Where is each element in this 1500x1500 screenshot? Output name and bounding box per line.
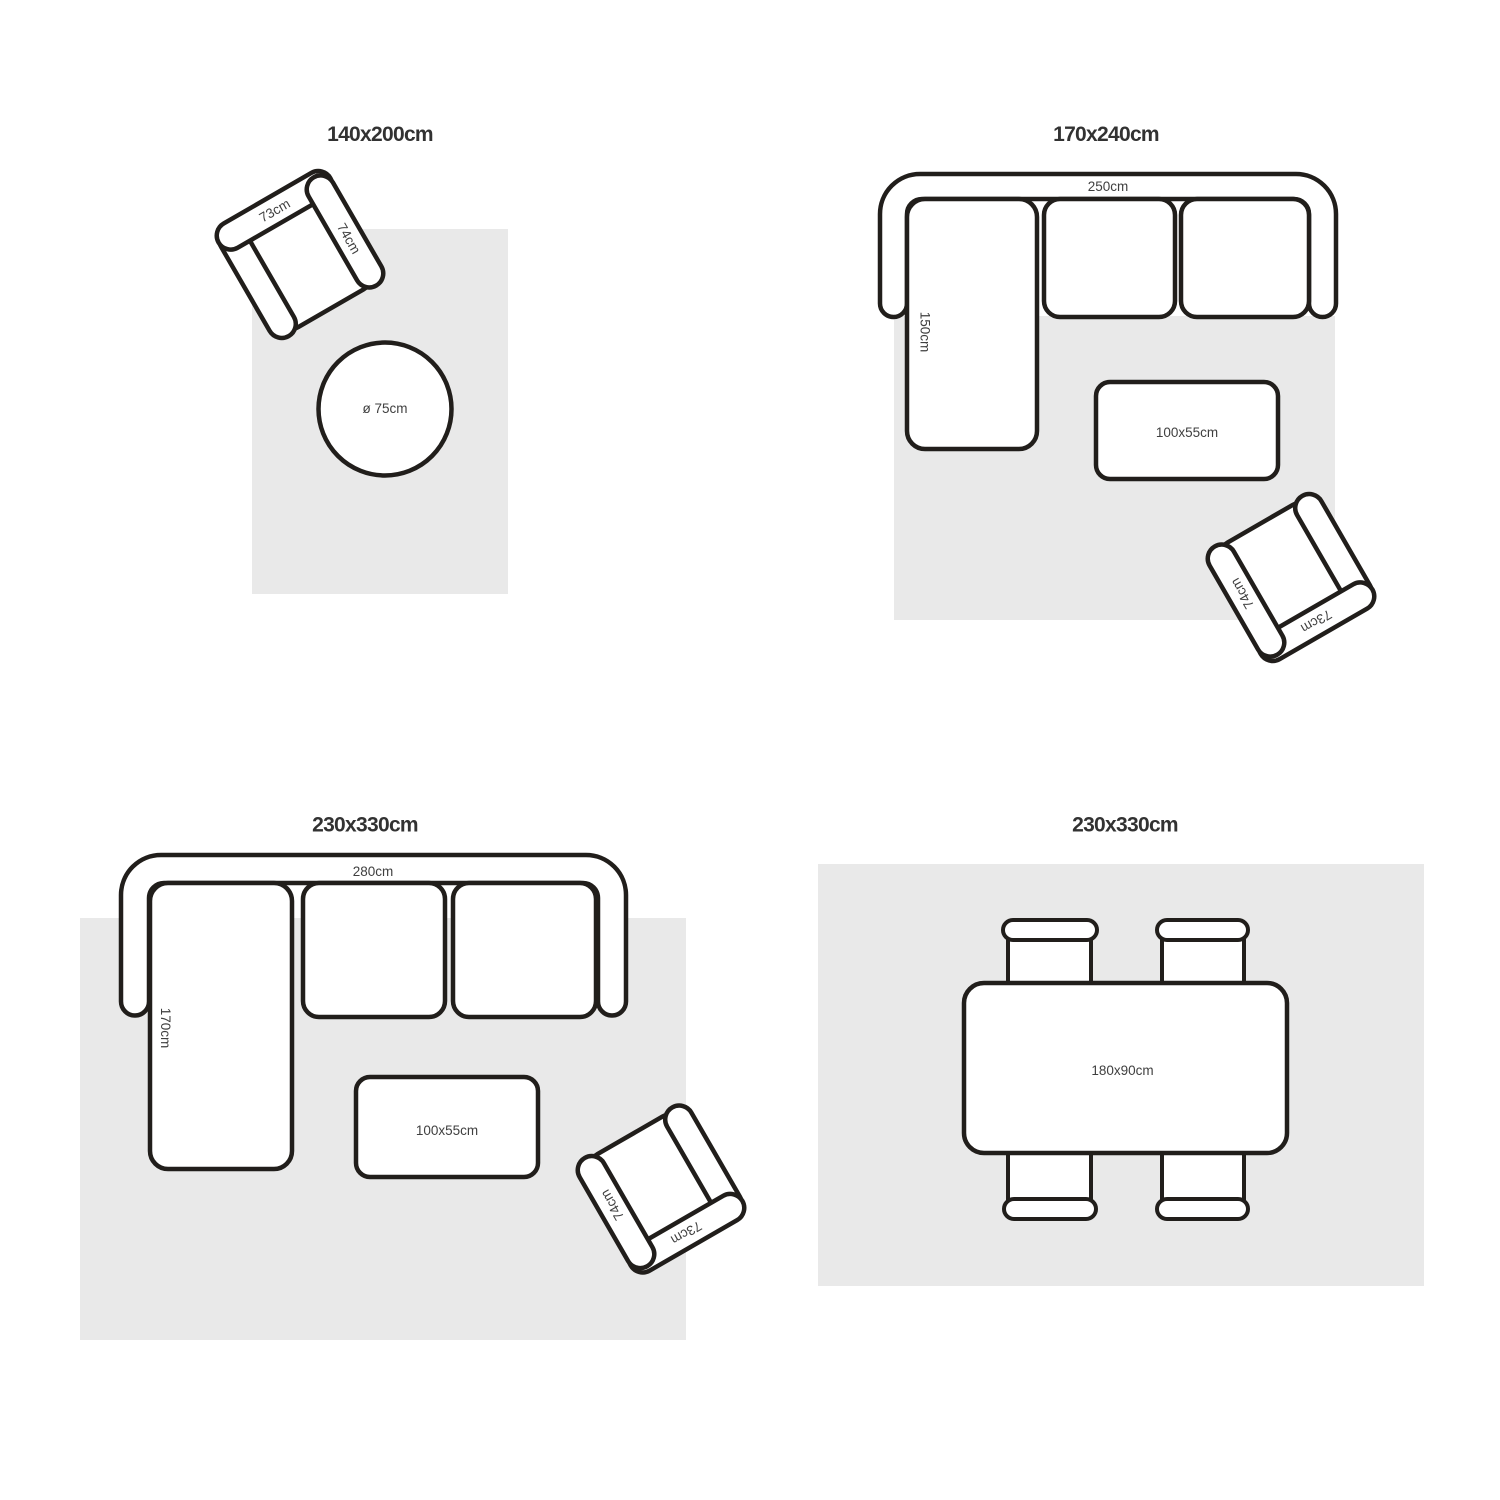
svg-text:170cm: 170cm: [158, 1008, 173, 1049]
svg-text:100x55cm: 100x55cm: [1156, 425, 1218, 440]
svg-text:150cm: 150cm: [918, 312, 933, 353]
svg-text:140x200cm: 140x200cm: [327, 123, 433, 146]
svg-text:100x55cm: 100x55cm: [416, 1123, 478, 1138]
svg-text:180x90cm: 180x90cm: [1091, 1063, 1153, 1078]
svg-text:230x330cm: 230x330cm: [312, 814, 418, 837]
svg-text:230x330cm: 230x330cm: [1072, 814, 1178, 837]
svg-text:170x240cm: 170x240cm: [1053, 123, 1159, 146]
svg-text:250cm: 250cm: [1088, 179, 1129, 194]
svg-text:280cm: 280cm: [353, 864, 394, 879]
svg-text:ø 75cm: ø 75cm: [362, 401, 407, 416]
